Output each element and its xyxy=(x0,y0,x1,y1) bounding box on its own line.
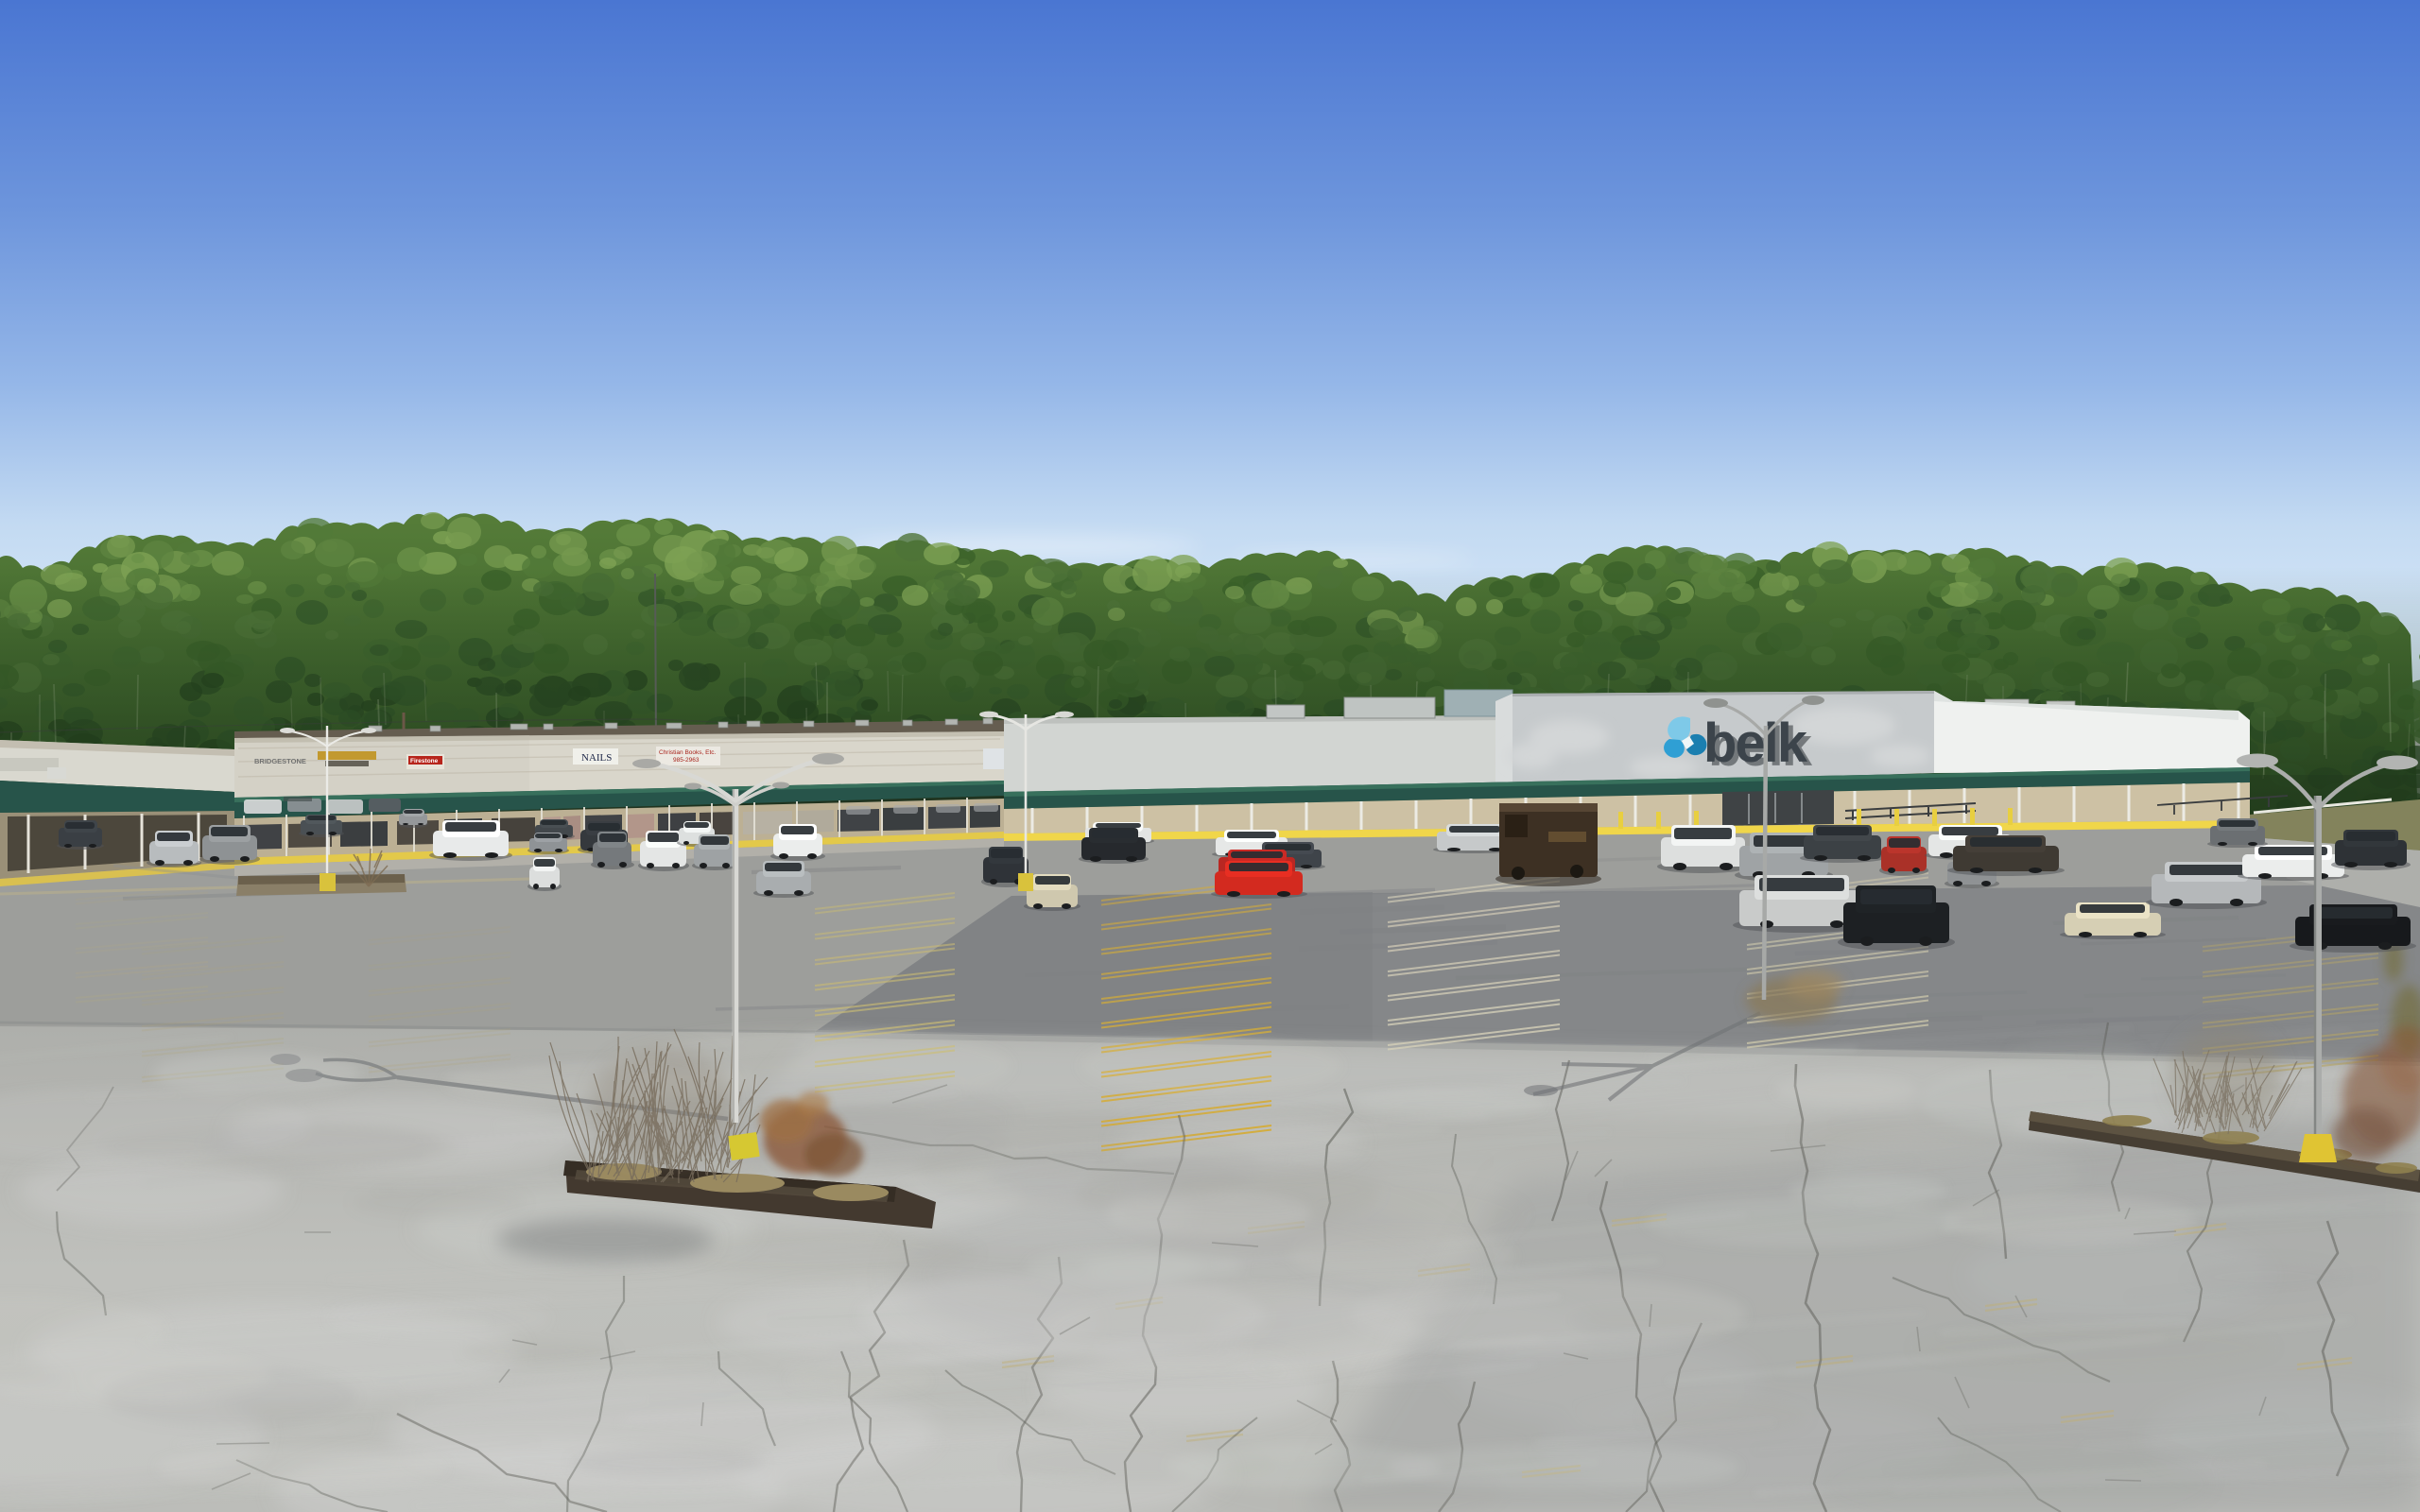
svg-text:NAILS: NAILS xyxy=(581,752,612,764)
svg-text:belk: belk xyxy=(1703,713,1808,774)
svg-text:Christian Books, Etc.: Christian Books, Etc. xyxy=(659,749,717,756)
svg-text:Firestone: Firestone xyxy=(410,758,439,765)
svg-text:BRIDGESTONE: BRIDGESTONE xyxy=(254,757,306,765)
svg-text:985-2963: 985-2963 xyxy=(673,757,700,764)
